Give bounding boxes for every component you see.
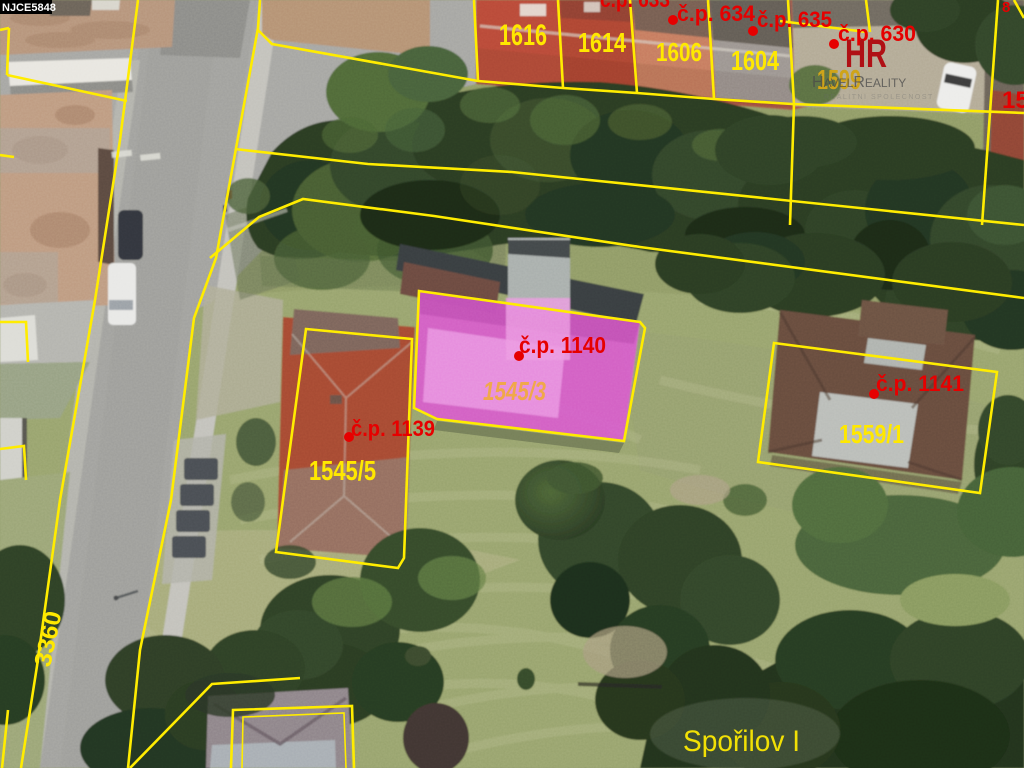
svg-text:15: 15 — [1002, 87, 1024, 114]
svg-text:1606: 1606 — [656, 37, 702, 67]
svg-text:1604: 1604 — [731, 45, 779, 76]
svg-text:1559/1: 1559/1 — [839, 419, 904, 449]
svg-text:REALITNI SPOLECNOST: REALITNI SPOLECNOST — [824, 94, 934, 101]
svg-text:8: 8 — [1002, 0, 1010, 16]
svg-text:1545/5: 1545/5 — [309, 455, 376, 486]
svg-text:1616: 1616 — [499, 19, 547, 52]
svg-text:Spořilov I: Spořilov I — [683, 725, 800, 758]
svg-text:HAVELREALITY: HAVELREALITY — [812, 74, 906, 91]
svg-text:HR: HR — [845, 32, 887, 76]
svg-text:NJCE5848: NJCE5848 — [2, 2, 56, 14]
svg-text:č.p. 635: č.p. 635 — [757, 7, 832, 32]
svg-text:č.p. 1140: č.p. 1140 — [519, 332, 606, 358]
svg-text:č.p. 633: č.p. 633 — [600, 0, 670, 12]
svg-text:č.p. 1141: č.p. 1141 — [876, 371, 964, 396]
svg-text:1614: 1614 — [578, 27, 626, 58]
svg-text:1545/3: 1545/3 — [483, 376, 546, 406]
svg-text:č.p. 1139: č.p. 1139 — [351, 416, 435, 441]
svg-text:č.p. 634: č.p. 634 — [677, 1, 756, 26]
